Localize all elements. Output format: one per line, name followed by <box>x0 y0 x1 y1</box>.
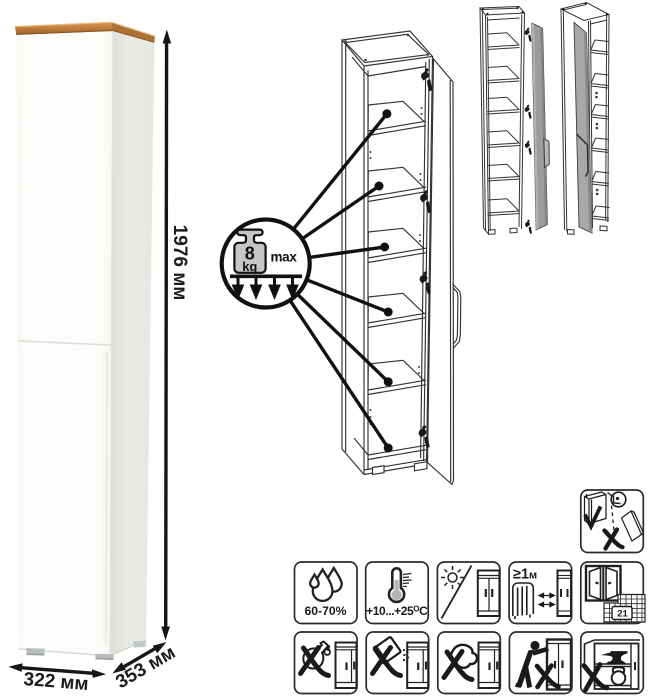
svg-text:+10...+25OC: +10...+25OC <box>366 604 428 618</box>
svg-text:1976 мм: 1976 мм <box>169 225 190 301</box>
svg-text:≥1м: ≥1м <box>513 567 537 583</box>
svg-text:kg: kg <box>242 259 257 274</box>
svg-text:60-70%: 60-70% <box>304 604 346 618</box>
svg-text:21: 21 <box>617 609 628 620</box>
svg-text:max: max <box>270 250 297 265</box>
